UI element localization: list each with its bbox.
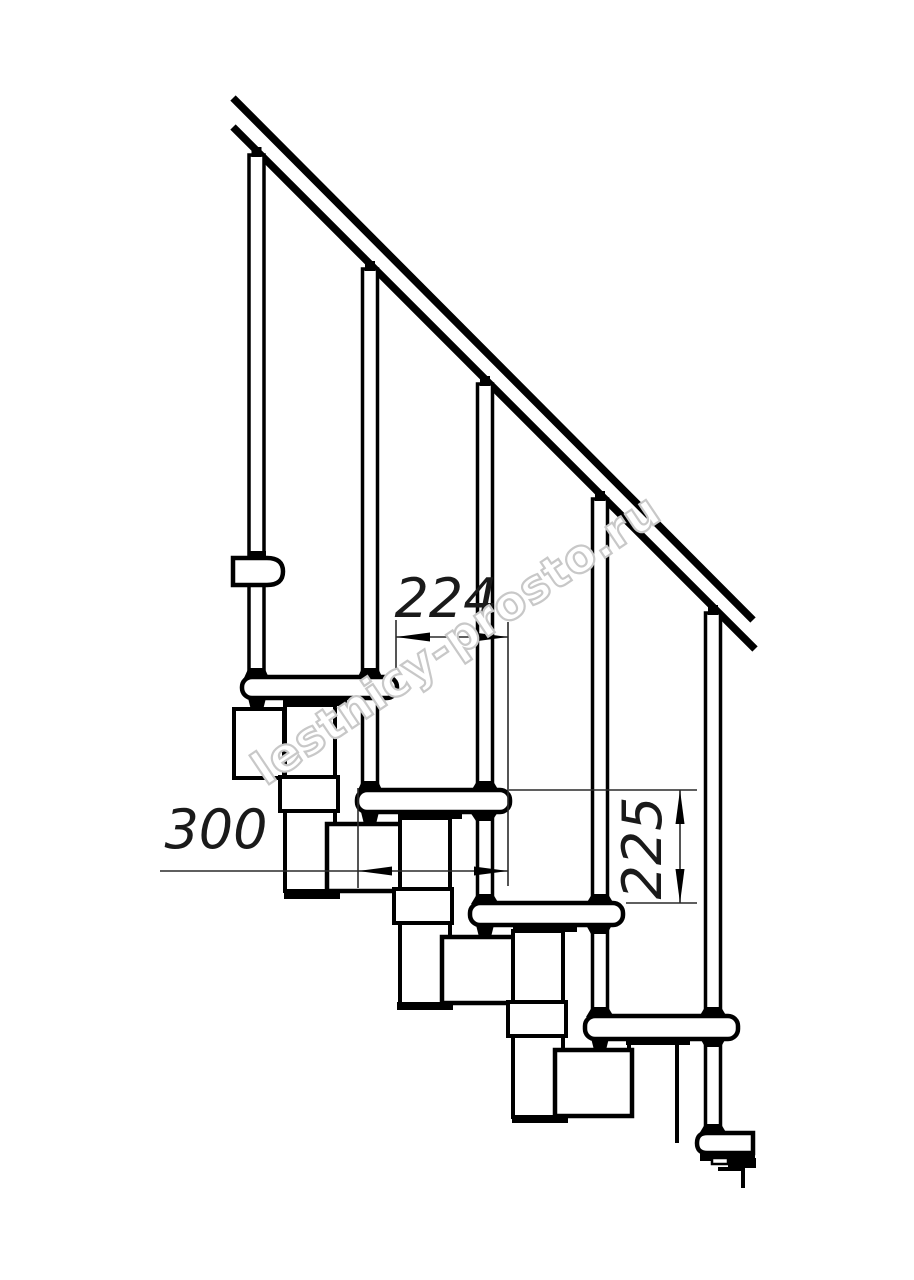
dim-224-label: 224 bbox=[394, 567, 497, 630]
baluster-shaft bbox=[706, 613, 721, 1133]
baluster-shaft bbox=[478, 384, 493, 906]
step bbox=[585, 1016, 738, 1039]
support-module bbox=[626, 1037, 690, 1143]
staircase-drawing: 224 300 225 bbox=[0, 0, 914, 1280]
support-box bbox=[234, 709, 284, 778]
bottom-step-fittings bbox=[700, 1151, 756, 1188]
dim-225-label: 225 bbox=[611, 796, 674, 899]
baluster-shaft bbox=[249, 155, 264, 680]
landing-bracket-step bbox=[233, 551, 283, 585]
step bbox=[470, 903, 623, 925]
drawing-page: 224 300 225 lestnicy-prosto.ru bbox=[0, 0, 914, 1280]
baluster-shaft bbox=[363, 269, 378, 793]
step bbox=[242, 677, 397, 698]
step-partial bbox=[697, 1133, 753, 1153]
baluster-shaft bbox=[593, 499, 608, 1019]
dim-300-label: 300 bbox=[164, 798, 267, 861]
step bbox=[357, 790, 510, 812]
